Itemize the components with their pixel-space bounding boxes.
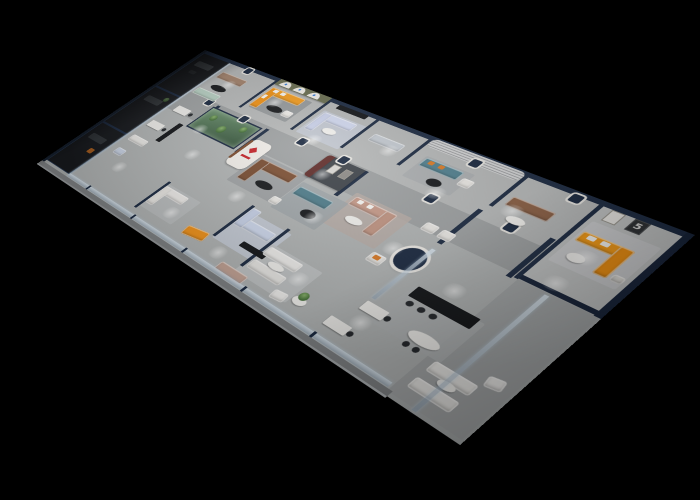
showroom-3d-render: 5 <box>0 0 700 500</box>
floorplan: 5 <box>38 50 695 445</box>
